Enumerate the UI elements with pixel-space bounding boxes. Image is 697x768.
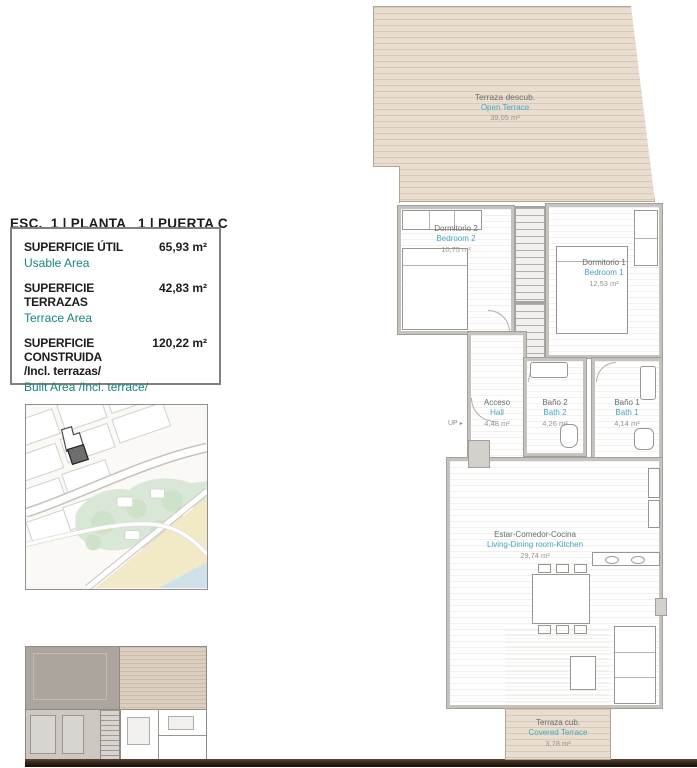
floor-plan-sheet: ESC. 1 | PLANTA 1 | PUERTA C Staircase. … [0,0,697,768]
dining-table [532,574,590,624]
sink-bowl [631,556,645,564]
bed [402,248,468,330]
kitchen-counter [592,552,660,566]
sofa [614,626,656,704]
bed [556,246,628,334]
wall-mass [468,440,490,468]
coffee-table [570,656,596,690]
washbasin [530,362,568,378]
up-annotation: UP ▸ [448,420,463,427]
washbasin [640,366,656,400]
terrace-notch [373,166,400,203]
chair [538,564,551,573]
room-open-terrace [373,6,655,202]
wardrobe [634,210,658,266]
wardrobe [402,210,482,230]
chair [556,564,569,573]
cabinet [648,500,660,528]
chair [574,564,587,573]
toilet [560,424,578,448]
sink-bowl [605,556,619,564]
up-arrow-icon: ▸ [460,420,463,427]
room-covered-terrace [505,708,611,760]
cabinet [648,468,660,498]
up-label: UP [448,420,458,427]
toilet [634,428,654,450]
wall-pillar [655,598,667,616]
stairwell-hatch-upper [514,206,546,303]
apartment-floor-plan: UP ▸ Terraza descub. Open Terrace 39,05 … [0,0,697,768]
